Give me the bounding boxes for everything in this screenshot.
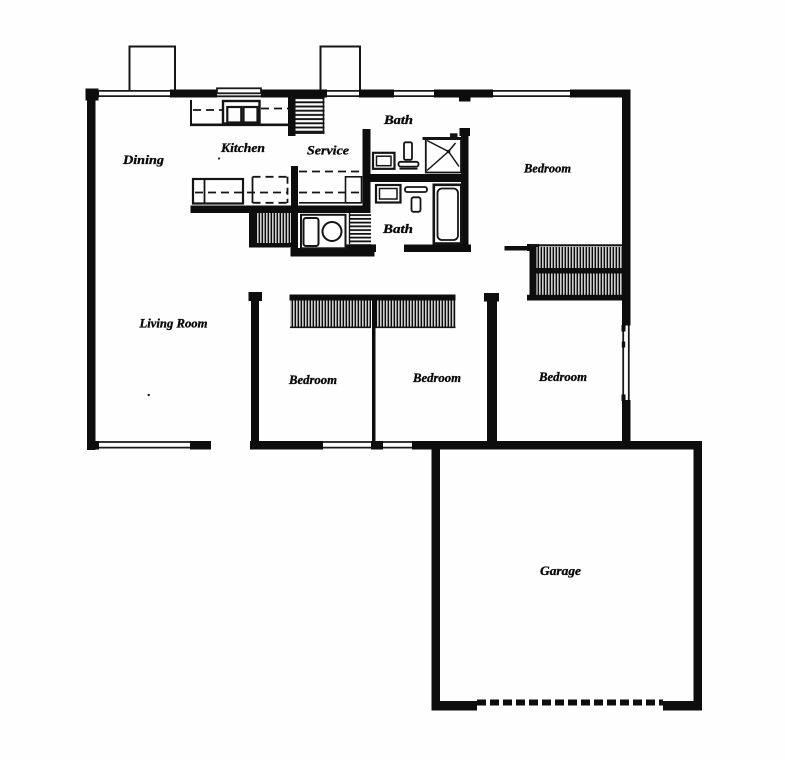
svg-text:Kitchen: Kitchen bbox=[220, 140, 265, 155]
svg-text:Service: Service bbox=[307, 143, 349, 158]
svg-text:Living Room: Living Room bbox=[138, 317, 207, 331]
svg-text:Bedroom: Bedroom bbox=[538, 370, 587, 384]
svg-text:Bath: Bath bbox=[383, 112, 413, 127]
svg-text:Bedroom: Bedroom bbox=[412, 371, 461, 385]
svg-text:Garage: Garage bbox=[540, 563, 581, 578]
svg-text:Bedroom: Bedroom bbox=[288, 373, 337, 387]
svg-text:Dining: Dining bbox=[122, 152, 165, 167]
svg-text:Bedroom: Bedroom bbox=[523, 162, 571, 176]
svg-text:Bath: Bath bbox=[382, 221, 413, 236]
